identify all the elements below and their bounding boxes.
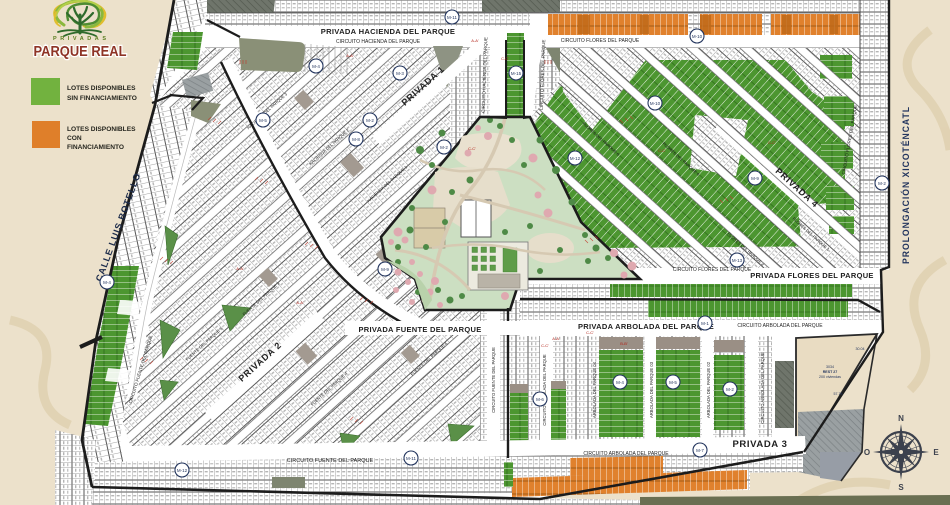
svg-text:C-C': C-C' (468, 146, 476, 151)
svg-text:M-4: M-4 (312, 64, 320, 69)
svg-text:PARQUE REAL: PARQUE REAL (34, 43, 127, 60)
svg-text:57.76: 57.76 (834, 392, 843, 396)
svg-text:M-5: M-5 (259, 118, 267, 123)
svg-text:LOTES DISPONIBLES: LOTES DISPONIBLES (67, 85, 136, 92)
svg-text:M-12: M-12 (177, 468, 188, 473)
svg-text:N: N (898, 414, 904, 423)
svg-text:CIRCUITO FLORES DEL PARQUE: CIRCUITO FLORES DEL PARQUE (561, 38, 640, 44)
svg-text:CIRCUITO FUENTE DEL PARQUE: CIRCUITO FUENTE DEL PARQUE (287, 458, 374, 464)
svg-text:M-1: M-1 (701, 321, 709, 326)
svg-text:3034: 3034 (826, 365, 834, 369)
svg-text:M-6: M-6 (536, 397, 544, 402)
svg-text:C-C': C-C' (501, 56, 509, 61)
svg-text:M-11: M-11 (406, 456, 416, 461)
svg-text:CIRCUITO ARBOLADA DEL PARQUE: CIRCUITO ARBOLADA DEL PARQUE (583, 451, 669, 457)
svg-text:PRIVADAS: PRIVADAS (53, 36, 109, 42)
svg-text:CIRCUITO ARBOLADA DEL PARQUE: CIRCUITO ARBOLADA DEL PARQUE (737, 323, 823, 329)
svg-text:M-2: M-2 (440, 145, 448, 150)
svg-text:C-C': C-C' (541, 343, 549, 348)
svg-text:ARBOLADA DEL PARQUE 03: ARBOLADA DEL PARQUE 03 (649, 361, 654, 418)
svg-text:C-C': C-C' (586, 330, 594, 335)
svg-text:M-11: M-11 (447, 15, 457, 20)
svg-text:M-2: M-2 (366, 118, 374, 123)
svg-text:PROLONGACIÓN XICOTÉNCATL: PROLONGACIÓN XICOTÉNCATL (900, 106, 911, 264)
svg-text:CIRCUITO HACIENDA DEL PARQUE: CIRCUITO HACIENDA DEL PARQUE (336, 39, 421, 45)
svg-text:REST 27: REST 27 (823, 370, 838, 374)
svg-text:M-10: M-10 (650, 101, 661, 106)
svg-text:M-3: M-3 (396, 71, 404, 76)
svg-text:ARBOLADA DEL PARQUE 02: ARBOLADA DEL PARQUE 02 (706, 361, 711, 418)
svg-text:E: E (933, 448, 939, 457)
svg-text:SIN FINANCIAMIENTO: SIN FINANCIAMIENTO (67, 95, 137, 102)
svg-text:CIRCUITO ARBOLADA DEL PARQUE: CIRCUITO ARBOLADA DEL PARQUE (542, 354, 547, 426)
svg-text:CON: CON (67, 135, 82, 142)
svg-text:A-A': A-A' (236, 266, 244, 271)
svg-text:B-B': B-B' (620, 341, 628, 346)
svg-text:M-9: M-9 (381, 267, 389, 272)
svg-text:M-2: M-2 (726, 387, 734, 392)
svg-text:A-A': A-A' (552, 336, 560, 341)
svg-text:PRIVADA ARBOLADA DEL PARQUE: PRIVADA ARBOLADA DEL PARQUE (578, 322, 714, 331)
svg-text:200 viviendas: 200 viviendas (819, 375, 841, 379)
svg-text:M-10: M-10 (692, 34, 703, 39)
svg-text:C-C': C-C' (768, 140, 776, 145)
svg-text:M-13: M-13 (732, 258, 743, 263)
svg-text:PRIVADA FUENTE DEL PARQUE: PRIVADA FUENTE DEL PARQUE (358, 325, 481, 334)
svg-text:A-A': A-A' (471, 38, 479, 43)
svg-text:CIRCUITO FUENTE DEL PARQUE: CIRCUITO FUENTE DEL PARQUE (491, 347, 496, 413)
svg-text:S: S (898, 483, 904, 492)
svg-text:PRIVADA FLORES DEL PARQUE: PRIVADA FLORES DEL PARQUE (750, 271, 873, 280)
svg-text:LOTES DISPONIBLES: LOTES DISPONIBLES (67, 126, 136, 133)
svg-text:CIRCUITO FLORES DEL PARQUE: CIRCUITO FLORES DEL PARQUE (673, 267, 752, 273)
svg-text:PRIVADA HACIENDA DEL PARQUE: PRIVADA HACIENDA DEL PARQUE (321, 27, 456, 36)
svg-text:M-5: M-5 (669, 380, 677, 385)
svg-text:O: O (864, 448, 870, 457)
svg-text:A-A': A-A' (296, 300, 304, 305)
svg-text:M-15: M-15 (511, 71, 522, 76)
svg-text:FINANCIAMIENTO: FINANCIAMIENTO (67, 144, 124, 151)
svg-text:M-8: M-8 (352, 137, 360, 142)
svg-text:ARBOLADA DEL PARQUE 04: ARBOLADA DEL PARQUE 04 (592, 361, 597, 418)
svg-text:M-4: M-4 (103, 280, 111, 285)
svg-text:M-9: M-9 (751, 176, 759, 181)
svg-text:CIRCUITO ARBOLADA DEL PARQUE: CIRCUITO ARBOLADA DEL PARQUE (760, 352, 765, 424)
svg-text:M-7: M-7 (696, 448, 704, 453)
svg-text:30.04: 30.04 (856, 347, 865, 351)
svg-text:M-2: M-2 (878, 181, 886, 186)
svg-text:C-C': C-C' (658, 148, 666, 153)
svg-text:M-12: M-12 (570, 156, 581, 161)
svg-text:PRIVADA 3: PRIVADA 3 (732, 439, 787, 450)
svg-text:A-A': A-A' (346, 53, 354, 58)
svg-text:M-4: M-4 (616, 380, 624, 385)
